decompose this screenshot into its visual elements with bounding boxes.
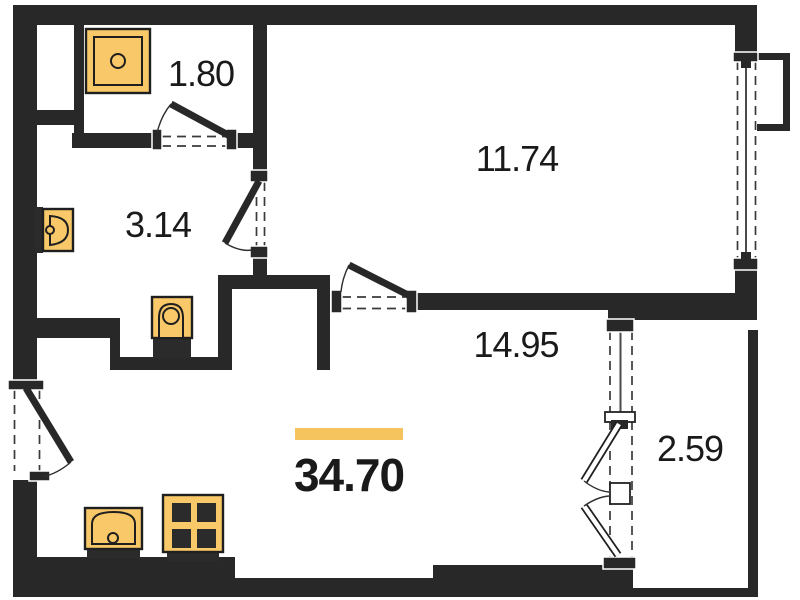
wall-band-left (417, 293, 608, 310)
room-label-living-kitchen: 14.95 (473, 324, 558, 365)
wall-divider-stub (253, 256, 267, 278)
wall-hall-top (218, 275, 330, 289)
wall-bottom-middle (235, 578, 433, 597)
balcony-door-bottom-cap (603, 557, 636, 569)
door-balcony-upper-leaf (584, 424, 619, 481)
door-storage (152, 104, 237, 150)
door-entrance-leaf (26, 388, 71, 462)
stove-icon (163, 495, 223, 561)
total-area-label: 34.70 (294, 449, 404, 501)
room-label-balcony: 2.59 (657, 428, 723, 469)
washing-machine-icon (86, 29, 150, 93)
wall-storage-bottom-left (72, 133, 153, 148)
total-area-accent-bar (295, 428, 403, 440)
floor-plan-canvas: 1.80 3.14 11.74 14.95 2.59 34.70 (0, 0, 800, 600)
wall-nook-right (317, 289, 330, 370)
door-bathroom (225, 170, 268, 258)
door-storage-leaf (171, 104, 230, 136)
wall-right-top (735, 5, 757, 55)
room-label-room: 11.74 (476, 138, 558, 179)
door-balcony-lower-leaf (584, 506, 618, 555)
wall-bath-bottom-left (37, 318, 120, 338)
wall-top (13, 5, 757, 25)
room-label-bathroom: 3.14 (125, 204, 191, 245)
wall-bath-bottom-right (110, 357, 232, 370)
door-balcony-handle (610, 483, 630, 504)
wall-balcony-right (748, 330, 758, 597)
door-balcony (584, 420, 630, 555)
room-label-storage: 1.80 (168, 53, 234, 94)
wall-shaft-right (74, 25, 84, 148)
wall-balcony-bottom (633, 588, 758, 597)
washbasin-icon (35, 207, 73, 253)
balcony-window-top-cap (606, 319, 634, 332)
kitchen-sink-icon (85, 508, 142, 559)
door-entrance (8, 380, 71, 481)
wall-divider-upper (253, 25, 267, 172)
wall-bottom-left (13, 557, 235, 597)
door-room-leaf (349, 265, 412, 297)
wall-shaft-bottom (37, 110, 74, 125)
window-room-right (733, 52, 758, 270)
external-ledge (757, 57, 787, 128)
floor-plan: 1.80 3.14 11.74 14.95 2.59 34.70 (0, 0, 800, 600)
wall-bottom-right (433, 565, 633, 597)
door-bathroom-leaf (225, 181, 259, 243)
door-room (331, 265, 417, 313)
wall-band-right (608, 293, 757, 320)
toilet-icon (152, 297, 192, 358)
wall-left-upper (13, 5, 37, 383)
